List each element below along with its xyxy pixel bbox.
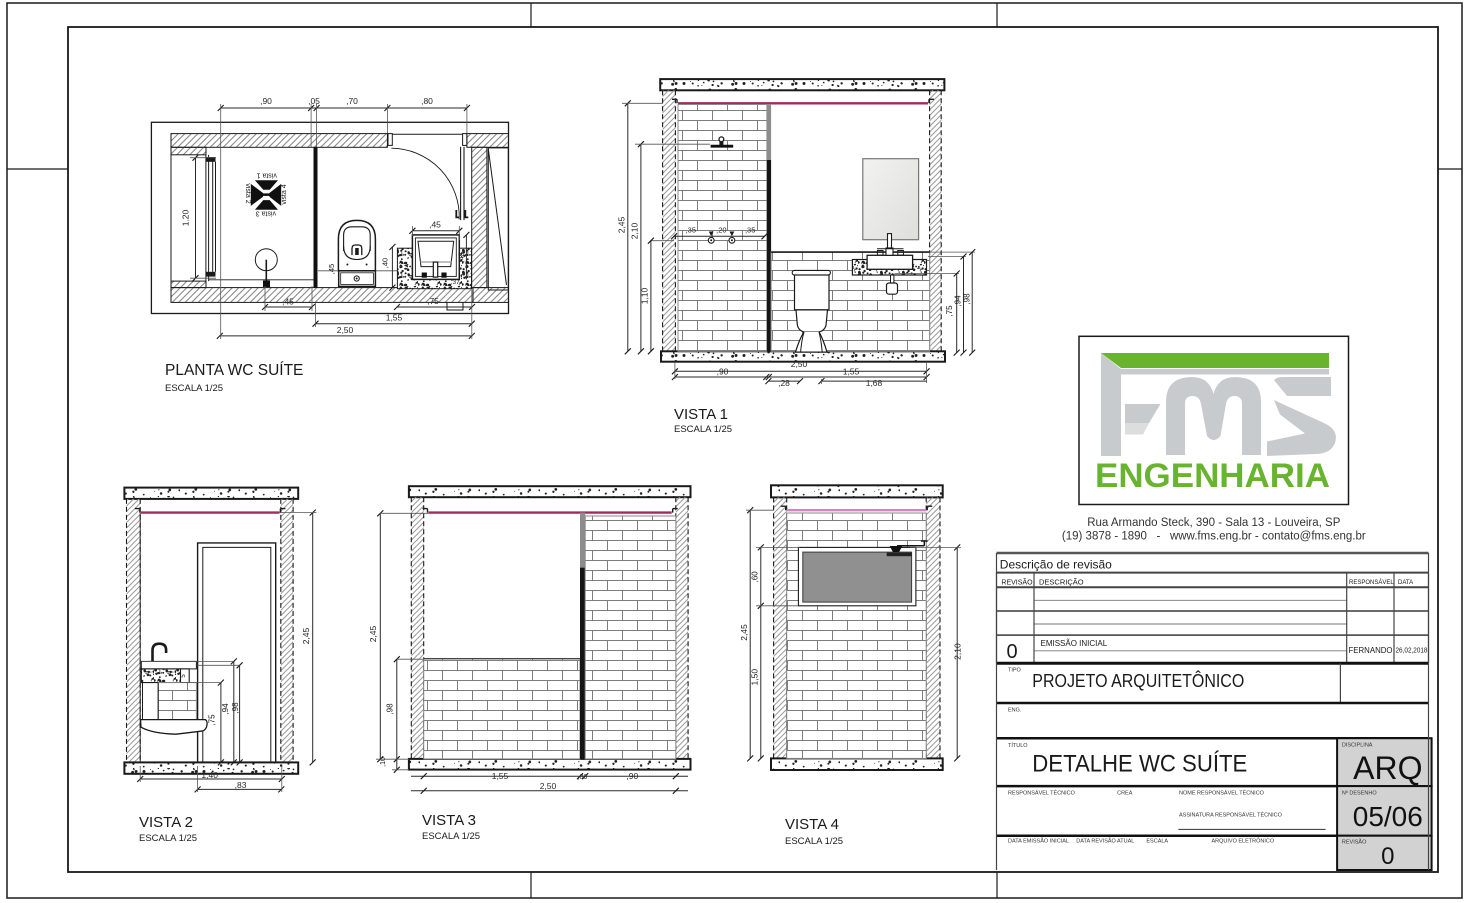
svg-text:2,10: 2,10: [630, 222, 640, 239]
svg-text:,10: ,10: [380, 757, 387, 767]
svg-text:1,10: 1,10: [640, 287, 650, 304]
svg-text:1,68: 1,68: [866, 378, 883, 388]
svg-text:2,10: 2,10: [953, 643, 963, 660]
svg-text:TÍTULO: TÍTULO: [1008, 742, 1028, 749]
svg-text:2,50: 2,50: [791, 359, 808, 369]
svg-text:2,50: 2,50: [337, 325, 354, 335]
svg-text:ENG.: ENG.: [1008, 708, 1022, 714]
svg-text:,35: ,35: [745, 226, 755, 235]
svg-text:,60: ,60: [750, 571, 759, 583]
svg-text:RESPONSÁVEL TÉCNICO: RESPONSÁVEL TÉCNICO: [1008, 790, 1076, 797]
svg-text:Nº DESENHO: Nº DESENHO: [1342, 790, 1377, 797]
svg-text:1,40: 1,40: [201, 770, 218, 780]
svg-text:ESCALA: ESCALA: [1146, 839, 1168, 845]
svg-text:1,55: 1,55: [492, 771, 509, 781]
svg-text:,28: ,28: [778, 378, 790, 388]
svg-text:0: 0: [1007, 641, 1018, 663]
svg-text:,98: ,98: [385, 703, 394, 715]
svg-text:DESCRIÇÃO: DESCRIÇÃO: [1039, 578, 1084, 587]
svg-text:VISTA 4: VISTA 4: [785, 816, 839, 833]
svg-text:,20: ,20: [716, 226, 726, 235]
svg-text:vista 4: vista 4: [281, 184, 288, 204]
svg-text:vista 2: vista 2: [244, 183, 251, 203]
svg-text:FERNANDO: FERNANDO: [1349, 645, 1393, 655]
svg-text:,75: ,75: [208, 714, 217, 726]
svg-text:ENGENHARIA: ENGENHARIA: [1095, 457, 1330, 495]
svg-text:,94: ,94: [221, 703, 230, 715]
svg-text:DATA EMISSÃO INICIAL: DATA EMISSÃO INICIAL: [1008, 838, 1069, 845]
svg-text:1,55: 1,55: [843, 367, 860, 377]
svg-text:1,50: 1,50: [749, 669, 759, 686]
svg-text:DISCIPLINA: DISCIPLINA: [1342, 743, 1373, 749]
svg-text:,45: ,45: [282, 297, 294, 307]
svg-text:ESCALA 1/25: ESCALA 1/25: [422, 831, 480, 842]
svg-text:PLANTA WC SUÍTE: PLANTA WC SUÍTE: [165, 362, 303, 379]
svg-text:,90: ,90: [717, 367, 729, 377]
svg-text:REVISÃO: REVISÃO: [1001, 578, 1033, 587]
svg-text:,40: ,40: [381, 258, 390, 268]
svg-text:,45: ,45: [457, 252, 466, 262]
svg-text:EMISSÃO INICIAL: EMISSÃO INICIAL: [1041, 639, 1108, 648]
svg-text:,05: ,05: [308, 96, 320, 106]
svg-text:Rua Armando Steck, 390 - Sala: Rua Armando Steck, 390 - Sala 13 - Louve…: [1087, 517, 1340, 529]
svg-text:DETALHE WC SUÍTE: DETALHE WC SUÍTE: [1032, 751, 1247, 778]
svg-text:VISTA 3: VISTA 3: [422, 812, 476, 829]
svg-text:ARQUIVO ELETRÔNICO: ARQUIVO ELETRÔNICO: [1212, 838, 1275, 845]
svg-text:,45: ,45: [327, 264, 336, 274]
svg-text:vista 3: vista 3: [256, 209, 276, 216]
svg-text:DATA REVISÃO ATUAL: DATA REVISÃO ATUAL: [1076, 838, 1134, 845]
svg-text:ASSINATURA RESPONSÁVEL TÉCNICO: ASSINATURA RESPONSÁVEL TÉCNICO: [1179, 812, 1283, 819]
svg-text:TIPO: TIPO: [1008, 668, 1022, 674]
svg-text:2,45: 2,45: [368, 625, 378, 642]
svg-text:,80: ,80: [421, 96, 433, 106]
svg-text:,90: ,90: [260, 96, 272, 106]
svg-text:,35: ,35: [686, 226, 696, 235]
svg-text:1,55: 1,55: [386, 313, 403, 323]
svg-text:,37: ,37: [451, 279, 460, 286]
svg-text:VISTA 2: VISTA 2: [139, 814, 193, 831]
svg-text:ESCALA 1/25: ESCALA 1/25: [674, 424, 732, 435]
svg-text:2,50: 2,50: [540, 781, 557, 791]
svg-text:ESCALA 1/25: ESCALA 1/25: [165, 383, 223, 394]
svg-text:0: 0: [1381, 843, 1394, 870]
svg-text:vista 1: vista 1: [256, 171, 276, 178]
svg-text:05/06: 05/06: [1353, 801, 1423, 832]
svg-text:2,45: 2,45: [739, 624, 749, 641]
svg-text:PROJETO ARQUITETÔNICO: PROJETO ARQUITETÔNICO: [1032, 670, 1244, 691]
svg-text:,90: ,90: [626, 771, 638, 781]
svg-text:,75: ,75: [427, 296, 439, 306]
svg-text:VISTA 1: VISTA 1: [674, 406, 728, 423]
svg-text:,98: ,98: [231, 702, 240, 714]
svg-text:(19) 3878 - 1890 - www.fms: (19) 3878 - 1890 - www.fms.eng.br - cont…: [1062, 531, 1366, 543]
svg-text:NOME RESPONSÁVEL TÉCNICO: NOME RESPONSÁVEL TÉCNICO: [1179, 790, 1265, 797]
svg-text:REVISÃO: REVISÃO: [1342, 839, 1367, 846]
svg-text:ESCALA 1/25: ESCALA 1/25: [139, 833, 197, 844]
svg-text:,83: ,83: [235, 780, 247, 790]
svg-text:,94: ,94: [953, 295, 962, 307]
svg-text:DATA: DATA: [1398, 580, 1413, 586]
svg-text:,45: ,45: [429, 220, 441, 230]
svg-text:ESCALA 1/25: ESCALA 1/25: [785, 836, 843, 847]
svg-text:2,45: 2,45: [617, 216, 627, 233]
svg-text:ARQ: ARQ: [1353, 750, 1422, 786]
svg-text:Descrição de revisão: Descrição de revisão: [1000, 558, 1112, 572]
svg-text:26,02,2018: 26,02,2018: [1396, 648, 1428, 655]
svg-text:,98: ,98: [963, 293, 972, 305]
svg-text:,06: ,06: [578, 774, 588, 781]
svg-text:RESPONSÁVEL: RESPONSÁVEL: [1349, 579, 1394, 586]
svg-text:,70: ,70: [346, 96, 358, 106]
svg-text:2,45: 2,45: [301, 627, 311, 644]
svg-text:CREA: CREA: [1117, 791, 1133, 797]
svg-text:1.20: 1.20: [181, 209, 191, 226]
